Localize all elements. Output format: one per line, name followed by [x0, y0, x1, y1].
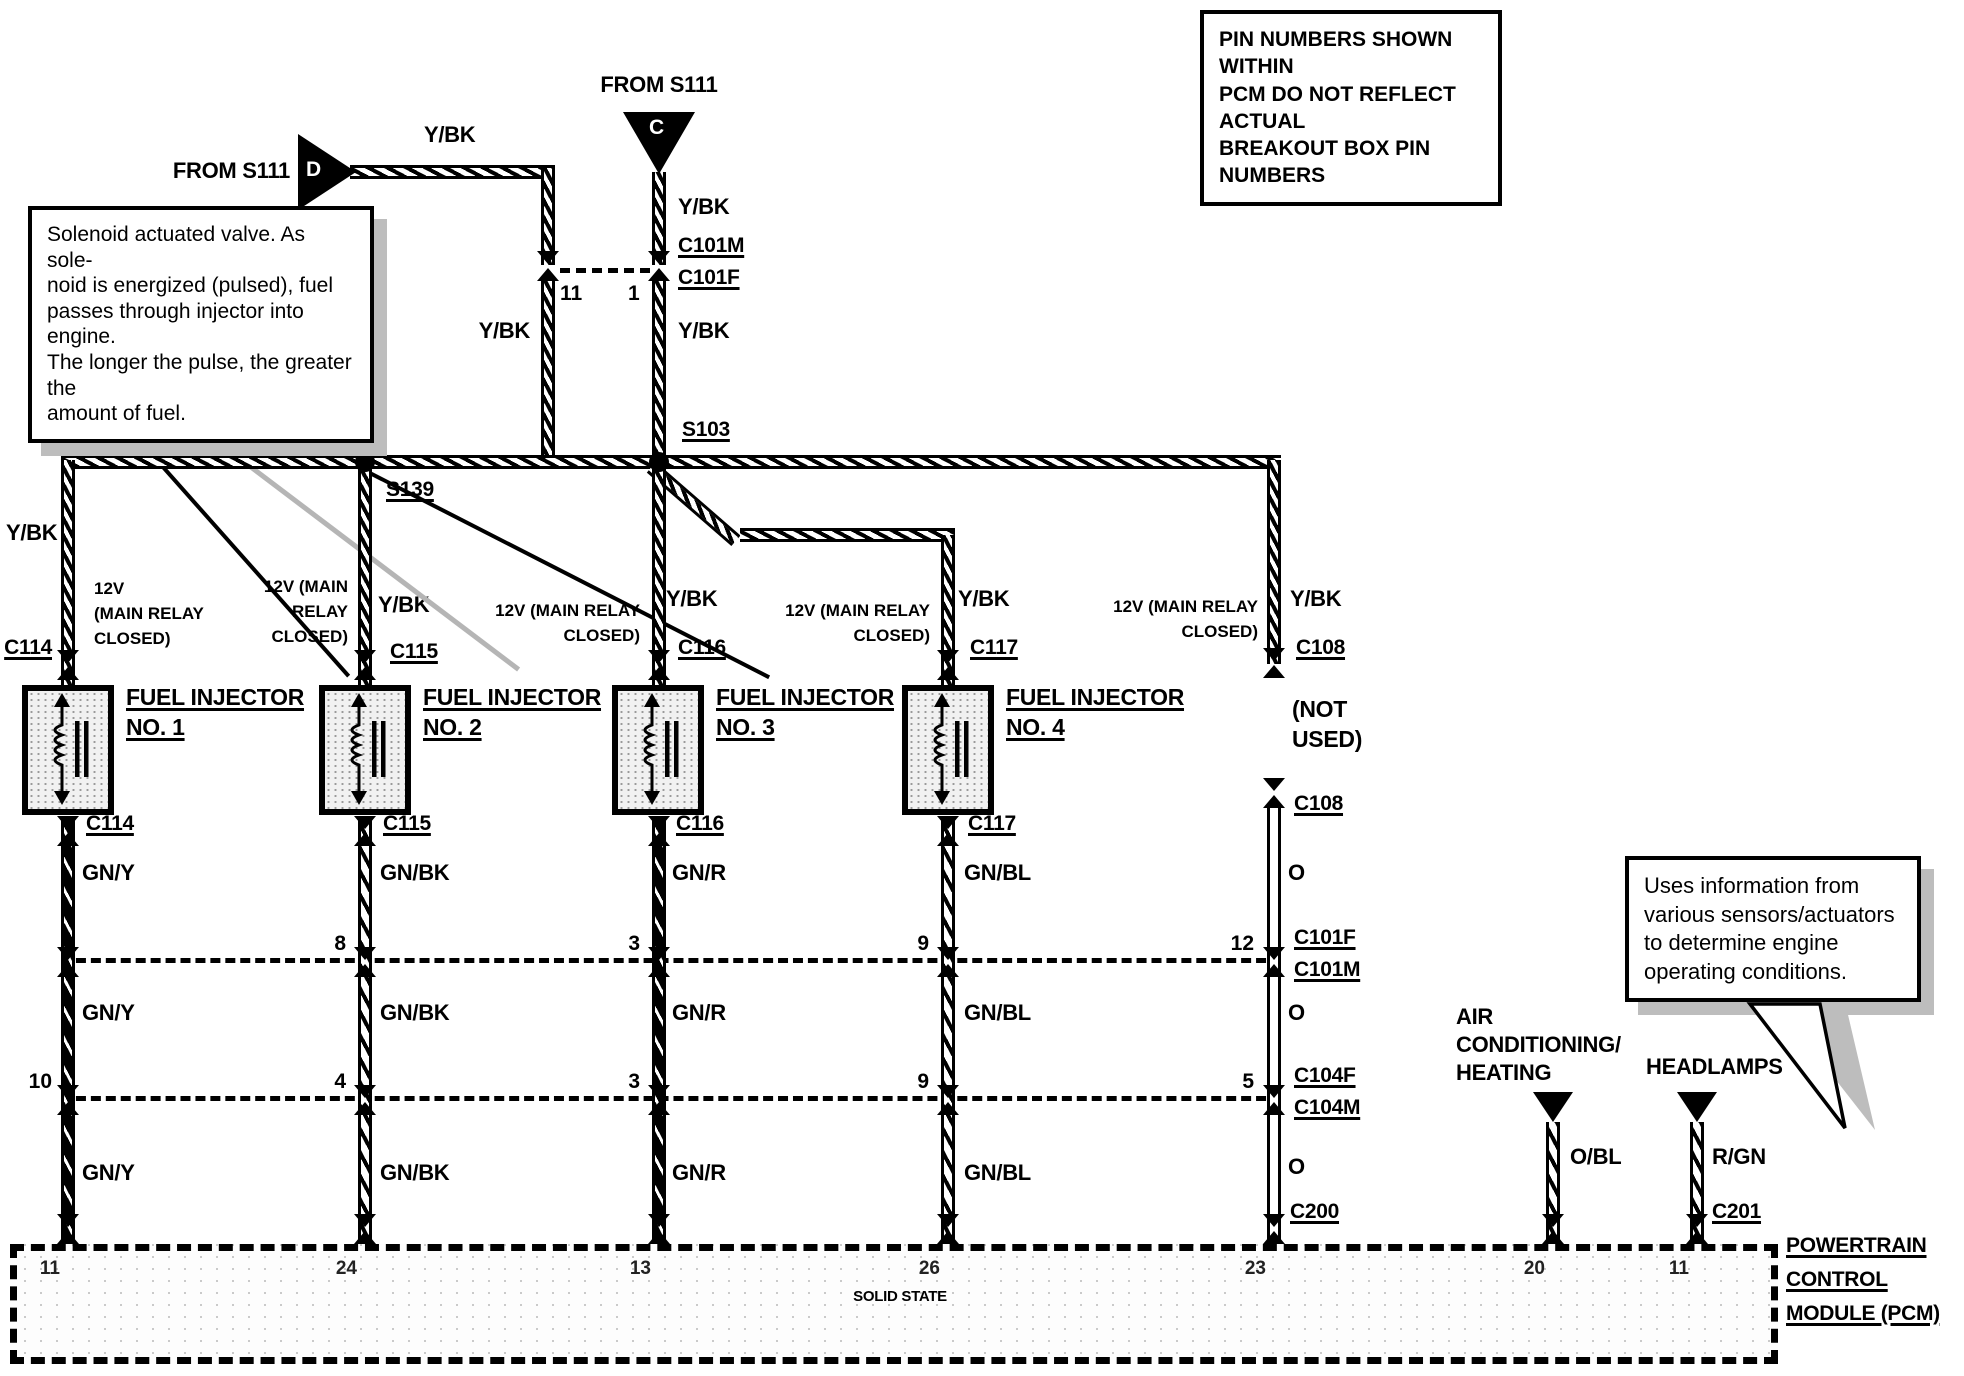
note-line: PIN NUMBERS SHOWN WITHIN	[1219, 26, 1483, 81]
connector-label: C117	[968, 812, 1016, 836]
label-line: (MAIN RELAY	[94, 601, 204, 626]
wire-ybk-bus	[61, 455, 1281, 469]
solenoid-note: Solenoid actuated valve. As sole- noid i…	[28, 206, 374, 443]
pcm-name: POWERTRAIN	[1786, 1234, 1927, 1258]
wire-color-label: GN/Y	[82, 860, 135, 886]
pin-number: 3	[600, 1070, 640, 1094]
connector-chevron	[646, 650, 672, 680]
label-line: CLOSED)	[1070, 619, 1258, 644]
wire-color-label: Y/BK	[466, 318, 530, 344]
connector-chevron	[646, 947, 672, 977]
connector-chevron	[352, 1085, 378, 1115]
connector-chevron	[1261, 947, 1287, 977]
connector-chevron	[352, 816, 378, 846]
label-line: 12V	[94, 576, 204, 601]
connector-label: C115	[390, 640, 438, 664]
connector-label: C114	[0, 636, 52, 660]
connector-chevron	[646, 1214, 672, 1244]
connector-label-c101m: C101M	[1294, 958, 1360, 982]
wire-signal-c108	[1267, 806, 1281, 1244]
connector-chevron	[935, 816, 961, 846]
pcm-pin-number: 13	[611, 1258, 651, 1280]
note-line: operating conditions.	[1644, 958, 1902, 987]
from-s111-left-label: FROM S111	[150, 158, 290, 184]
connector-chevron	[646, 1085, 672, 1115]
pcm-note-tail	[1680, 1002, 1910, 1142]
connector-chevron	[55, 947, 81, 977]
device-label: FUEL INJECTOR	[126, 684, 304, 711]
pin-number: 5	[1206, 1070, 1254, 1094]
connector-chevron	[352, 650, 378, 680]
wire-ybk-branch-horizontal	[740, 528, 955, 542]
connector-chevron	[535, 251, 561, 281]
connector-chevron	[1261, 648, 1287, 678]
splice-label-s139: S139	[386, 478, 434, 502]
pcm-name: CONTROL	[1786, 1268, 1888, 1292]
connector-chevron	[1540, 1214, 1566, 1244]
fuel-injector-box-1	[22, 685, 114, 815]
label-line: 12V (MAIN RELAY	[745, 598, 930, 623]
pin-number: 3	[600, 932, 640, 956]
pcm-center-label: SOLID STATE	[780, 1288, 1020, 1305]
wire-color-label: O/BL	[1570, 1144, 1621, 1170]
connector-chevron	[1261, 1085, 1287, 1115]
wire-color-label: Y/BK	[424, 122, 475, 148]
note-line: to determine engine	[1644, 929, 1902, 958]
not-used-label: USED)	[1292, 726, 1362, 753]
pin-number: 9	[889, 932, 929, 956]
connector-chevron	[55, 650, 81, 680]
connector-label: C108	[1294, 792, 1343, 816]
connector-label-c104f: C104F	[1294, 1064, 1356, 1088]
from-s111-top-label: FROM S111	[589, 72, 729, 98]
input-label-ac: AIR	[1456, 1004, 1493, 1030]
wire-ybk-vertical-c2	[652, 280, 666, 462]
connector-chevron	[352, 947, 378, 977]
connector-chevron	[55, 816, 81, 846]
note-line: Solenoid actuated valve. As sole-	[47, 222, 355, 273]
connector-c101-dashed-line	[560, 268, 650, 273]
connector-label: C116	[678, 636, 726, 660]
supply-voltage-label: 12V (MAIN RELAY CLOSED)	[745, 598, 930, 648]
wire-color-label: R/GN	[1712, 1144, 1766, 1170]
connector-chevron	[935, 947, 961, 977]
note-line: The longer the pulse, the greater the	[47, 350, 355, 401]
connector-chevron	[55, 1085, 81, 1115]
device-label: NO. 3	[716, 714, 775, 741]
fuel-injector-box-4	[902, 685, 994, 815]
pcm-pin-number: 26	[900, 1258, 940, 1280]
wire-color-label: Y/BK	[678, 194, 729, 220]
wire-color-label: Y/BK	[958, 586, 1009, 612]
wire-signal-injector1	[61, 820, 75, 1244]
wire-signal-injector3	[652, 820, 666, 1244]
connector-chevron	[1261, 778, 1287, 808]
wire-color-label: GN/BK	[380, 860, 449, 886]
label-line: 12V (MAIN RELAY	[455, 598, 640, 623]
connector-letter-d: D	[306, 158, 321, 182]
connector-label-c200: C200	[1290, 1200, 1339, 1224]
connector-chevron	[646, 816, 672, 846]
input-arrow-icon	[1533, 1092, 1573, 1122]
solenoid-coil-icon	[618, 691, 698, 809]
pin-number: 11	[560, 282, 582, 306]
splice-s103	[649, 452, 669, 472]
splice-s139	[355, 452, 375, 472]
note-line: PCM DO NOT REFLECT ACTUAL	[1219, 81, 1483, 136]
splice-label-s103: S103	[682, 418, 730, 442]
pcm-note: Uses information from various sensors/ac…	[1625, 856, 1921, 1002]
label-line: CLOSED)	[94, 626, 204, 651]
pin-number: 12	[1206, 932, 1254, 956]
wire-color-label: Y/BK	[666, 586, 717, 612]
wire-color-label: GN/Y	[82, 1000, 135, 1026]
pin-number: 10	[8, 1070, 52, 1094]
note-line: various sensors/actuators	[1644, 901, 1902, 930]
wire-signal-injector2	[358, 820, 372, 1244]
connector-label-c101f: C101F	[1294, 926, 1356, 950]
note-line: passes through injector into engine.	[47, 299, 355, 350]
label-line: CLOSED)	[745, 623, 930, 648]
wire-color-label: GN/BK	[380, 1000, 449, 1026]
pin-numbers-note: PIN NUMBERS SHOWN WITHIN PCM DO NOT REFL…	[1200, 10, 1502, 206]
pcm-pin-number: 11	[1649, 1258, 1689, 1280]
wire-supply-c108	[1267, 460, 1281, 664]
connector-letter-c: C	[649, 116, 664, 140]
connector-chevron	[1261, 1214, 1287, 1244]
connector-chevron	[55, 1214, 81, 1244]
wire-ybk-vertical-d2	[541, 280, 555, 462]
connector-chevron	[935, 1085, 961, 1115]
note-line: Uses information from	[1644, 872, 1902, 901]
pin-number: 9	[889, 1070, 929, 1094]
device-label: FUEL INJECTOR	[423, 684, 601, 711]
device-label: NO. 1	[126, 714, 185, 741]
pcm-pin-number: 24	[317, 1258, 357, 1280]
pin-number: 8	[306, 932, 346, 956]
wire-color-label: GN/R	[672, 860, 726, 886]
device-label: FUEL INJECTOR	[716, 684, 894, 711]
solenoid-coil-icon	[908, 691, 988, 809]
connector-label-c104m: C104M	[1294, 1096, 1360, 1120]
fuel-injector-box-2	[319, 685, 411, 815]
label-line: 12V (MAIN RELAY	[1070, 594, 1258, 619]
connector-label: C108	[1296, 636, 1345, 660]
wire-color-label: GN/BL	[964, 1160, 1031, 1186]
connector-label: C115	[383, 812, 431, 836]
wire-color-label: GN/BL	[964, 860, 1031, 886]
pin-number: 1	[628, 282, 640, 306]
device-label: FUEL INJECTOR	[1006, 684, 1184, 711]
solenoid-coil-icon	[325, 691, 405, 809]
pcm-pin-number: 11	[20, 1258, 60, 1280]
connector-label: C117	[970, 636, 1018, 660]
note-line: noid is energized (pulsed), fuel	[47, 273, 355, 299]
wire-signal-injector4	[941, 820, 955, 1244]
pin-number: 4	[306, 1070, 346, 1094]
connector-label-c201: C201	[1712, 1200, 1761, 1224]
solenoid-coil-icon	[28, 691, 108, 809]
label-line: RELAY	[198, 599, 348, 624]
connector-label: C116	[676, 812, 724, 836]
label-line: 12V (MAIN	[198, 574, 348, 599]
connector-chevron	[646, 251, 672, 281]
connector-label: C114	[86, 812, 134, 836]
wire-color-label: GN/Y	[82, 1160, 135, 1186]
note-line: BREAKOUT BOX PIN NUMBERS	[1219, 135, 1483, 190]
device-label: NO. 2	[423, 714, 482, 741]
wire-color-label: Y/BK	[1290, 586, 1341, 612]
wire-color-label: Y/BK	[6, 520, 57, 546]
wire-color-label: GN/BL	[964, 1000, 1031, 1026]
wire-color-label: O	[1288, 860, 1305, 886]
pcm-pin-number: 23	[1226, 1258, 1266, 1280]
label-line: CLOSED)	[198, 624, 348, 649]
supply-voltage-label: 12V (MAIN RELAY CLOSED)	[198, 574, 348, 649]
connector-chevron	[935, 1214, 961, 1244]
not-used-label: (NOT	[1292, 696, 1347, 723]
wire-ybk-horizontal-d	[350, 165, 555, 179]
supply-voltage-label: 12V (MAIN RELAY CLOSED)	[94, 576, 204, 651]
note-line: amount of fuel.	[47, 401, 355, 427]
pcm-name: MODULE (PCM)	[1786, 1302, 1940, 1326]
connector-chevron	[1684, 1214, 1710, 1244]
device-label: NO. 4	[1006, 714, 1065, 741]
connector-chevron	[935, 650, 961, 680]
supply-voltage-label: 12V (MAIN RELAY CLOSED)	[1070, 594, 1258, 644]
connector-chevron	[352, 1214, 378, 1244]
wire-color-label: GN/R	[672, 1000, 726, 1026]
wire-color-label: O	[1288, 1154, 1305, 1180]
input-label-ac: HEATING	[1456, 1060, 1551, 1086]
pcm-pin-number: 20	[1505, 1258, 1545, 1280]
wiring-diagram: PIN NUMBERS SHOWN WITHIN PCM DO NOT REFL…	[0, 0, 1964, 1376]
input-label-ac: CONDITIONING/	[1456, 1032, 1621, 1058]
wire-color-label: Y/BK	[678, 318, 729, 344]
wire-color-label: GN/R	[672, 1160, 726, 1186]
wire-color-label: GN/BK	[380, 1160, 449, 1186]
wire-color-label: O	[1288, 1000, 1305, 1026]
connector-label-c101m: C101M	[678, 234, 744, 258]
fuel-injector-box-3	[612, 685, 704, 815]
connector-label-c101f: C101F	[678, 266, 740, 290]
